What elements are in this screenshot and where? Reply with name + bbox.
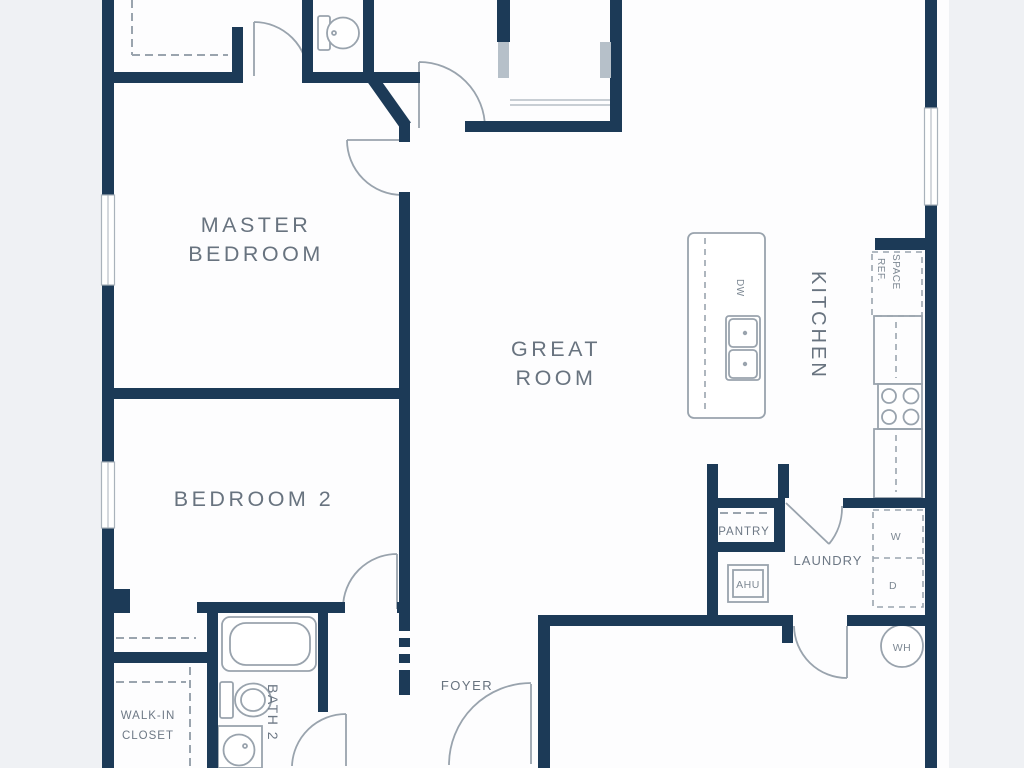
wall-segment (102, 285, 114, 462)
master-wc-toilet (318, 16, 359, 50)
floor-plan: MASTER BEDROOM BEDROOM 2 GREAT ROOM KITC… (0, 0, 1024, 768)
bath2-label: BATH 2 (265, 684, 281, 741)
wall-segment (318, 613, 328, 712)
kitchen-label: KITCHEN (807, 271, 829, 380)
wall-segment (610, 0, 622, 130)
wall-segment (197, 602, 345, 613)
master-bedroom-label-line2: BEDROOM (188, 242, 324, 266)
wall-segment (497, 0, 510, 42)
wall-segment (399, 675, 410, 695)
dishwasher-label: DW (734, 279, 745, 297)
wall-segment (778, 464, 789, 498)
wall-segment (102, 388, 410, 399)
walk-in-closet-label-line1: WALK-IN (121, 710, 176, 722)
wall-segment (399, 122, 410, 142)
ref-space-label-line2: SPACE (890, 254, 901, 290)
wall-segment (308, 72, 420, 83)
bedroom2-label: BEDROOM 2 (174, 487, 335, 511)
ref-space-label-line1: REF. (875, 258, 886, 282)
wall-segment (925, 0, 937, 108)
washer-label: W (891, 531, 901, 543)
great-room-label-line2: ROOM (516, 366, 597, 390)
wall-segment (114, 589, 130, 613)
great-room-label-line1: GREAT (511, 337, 601, 361)
wall-segment (782, 615, 793, 643)
wall-segment (875, 238, 925, 250)
foyer-label: FOYER (441, 678, 493, 693)
sink-drain-dot (743, 331, 747, 335)
porch-jamb (600, 42, 611, 78)
wall-segment (302, 0, 313, 83)
wall-segment (843, 498, 925, 508)
wall-segment (847, 615, 935, 626)
vanity-sink (224, 735, 255, 766)
wall-segment (538, 615, 793, 626)
wall-segment (102, 0, 114, 195)
wall-segment (102, 72, 243, 83)
wall-segment (707, 542, 785, 552)
sink-drain-dot (743, 362, 747, 366)
laundry-label: LAUNDRY (794, 553, 863, 568)
porch-jamb (498, 42, 509, 78)
wall-segment (363, 0, 374, 83)
pantry-label: PANTRY (718, 526, 770, 538)
kitchen-island (688, 233, 765, 418)
wall-segment (465, 121, 622, 132)
wall-segment (207, 613, 218, 768)
wall-segment (707, 498, 785, 508)
dryer-label: D (889, 580, 897, 592)
toilet-tank (220, 682, 233, 718)
master-bedroom-label-line1: MASTER (201, 213, 312, 237)
wall-segment (399, 192, 410, 622)
water-heater-label: WH (893, 642, 912, 654)
floor-plan-page: MASTER BEDROOM BEDROOM 2 GREAT ROOM KITC… (0, 0, 1024, 768)
wall-segment (102, 652, 218, 663)
wall-segment (925, 205, 937, 768)
walk-in-closet-label-line2: CLOSET (122, 730, 174, 742)
ahu-label: AHU (736, 579, 760, 591)
wall-segment (397, 602, 410, 613)
wall-segment (102, 528, 114, 768)
wall-segment (538, 615, 550, 768)
wall-segment (232, 27, 243, 83)
